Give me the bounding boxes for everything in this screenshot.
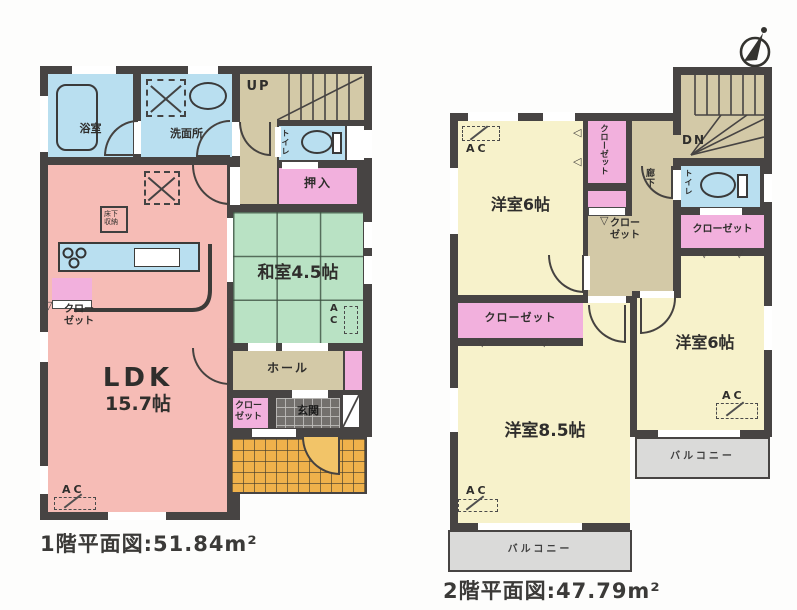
opening-hall [248, 343, 276, 351]
door-gap-hall-genkan [292, 390, 328, 398]
window [543, 112, 575, 121]
entrance-porch [230, 437, 367, 494]
toilet-tank-icon [737, 174, 748, 198]
window [108, 512, 166, 520]
label-closet-entry: クローゼット [235, 401, 267, 423]
ac-unit-box [462, 126, 500, 141]
window [764, 306, 772, 350]
window [764, 174, 772, 202]
door-gap-room-east6 [640, 291, 674, 298]
bathtub-icon [56, 84, 98, 151]
hall-side-closet [345, 351, 362, 390]
door-gap-room-south85 [588, 296, 626, 303]
window [40, 332, 48, 362]
door-gap-room-west6 [583, 256, 590, 290]
folding-door-icon: ▽ [540, 337, 548, 348]
toilet-window-recess [347, 126, 364, 160]
label-washitsu: 和室4.5帖 [233, 264, 363, 283]
entrance-door-gap [252, 429, 296, 437]
shoe-cabinet [342, 394, 360, 428]
folding-door-icon: ▽ [600, 215, 608, 226]
label-ac-west6: AC [466, 143, 489, 155]
underfloor-storage-label: 床下収納 [104, 210, 120, 227]
refrigerator-space-icon [144, 171, 180, 205]
label-room-east6: 洋室6帖 [650, 334, 760, 352]
label-hallway: 廊下 [644, 168, 653, 188]
folding-door-icon: ◁ [573, 156, 581, 167]
window [468, 112, 518, 121]
label-stairs-up: UP [240, 80, 277, 94]
window [450, 168, 458, 234]
label-closet-kitchen: クローゼット [64, 304, 98, 328]
folding-door-icon: ▽ [735, 248, 743, 259]
closet-kitchen-box [52, 278, 92, 300]
folding-door-icon: ▽ [478, 337, 486, 348]
label-toilet-f1: トイレ [281, 129, 289, 156]
underfloor-storage-box: 床下収納 [100, 206, 128, 233]
closet-hall-box [588, 191, 626, 207]
window [364, 222, 372, 248]
folding-door-icon: ◁ [573, 127, 581, 138]
window [658, 430, 740, 437]
floorplan-canvas: 床下収納 ▽ 浴室 洗面所 UP トイレ 押入 和室4.5帖 LDK 15.7帖… [0, 0, 797, 610]
label-washroom: 洗面所 [141, 128, 232, 140]
folding-door-icon: ▽ [700, 248, 708, 259]
window [478, 523, 582, 530]
floor2-caption: 2階平面図:47.79m² [443, 575, 661, 605]
ac-unit-box [344, 306, 358, 334]
label-oshiire: 押入 [279, 177, 357, 190]
opening-oshiire [282, 162, 318, 169]
window [188, 66, 218, 74]
label-room-south85: 洋室8.5帖 [470, 422, 620, 441]
window [40, 96, 48, 152]
label-toilet-f2: トイレ [684, 169, 692, 196]
toilet-bowl-icon [301, 130, 333, 154]
toilet-tank-icon [332, 132, 342, 154]
label-stairs-down: DN [676, 134, 712, 147]
label-bath: 浴室 [48, 123, 133, 135]
opening-washitsu-hall [282, 343, 328, 351]
label-closet-west6: クローゼット [599, 124, 608, 175]
sink-icon [189, 82, 227, 110]
washer-icon [146, 79, 186, 117]
window [40, 466, 48, 494]
folding-door-icon: ▽ [44, 300, 52, 311]
opening-closet-east6 [700, 208, 742, 215]
toilet-bowl-icon [700, 172, 736, 198]
label-ac-east6: AC [722, 390, 745, 402]
label-ac-washitsu: AC [330, 303, 343, 327]
label-ldk-size: 15.7帖 [88, 394, 188, 415]
window [450, 388, 458, 432]
label-closet-hall: クローゼット [610, 218, 642, 242]
door-gap-toilet-f2 [673, 170, 681, 200]
label-genkan: 玄関 [276, 405, 340, 417]
label-closet-south85: クローゼット [458, 312, 583, 324]
label-hall: ホール [233, 362, 343, 375]
north-arrow-icon [731, 20, 781, 74]
label-balcony-south: バルコニー [448, 544, 632, 555]
window [72, 66, 116, 74]
label-closet-east6: クローゼット [681, 224, 764, 235]
floor1-caption: 1階平面図:51.84m² [40, 528, 258, 558]
label-ldk: LDK [88, 364, 188, 393]
label-ac-south85: AC [466, 485, 489, 497]
label-room-west6: 洋室6帖 [458, 196, 583, 214]
window [364, 256, 372, 284]
label-balcony-east: バルコニー [635, 451, 770, 462]
stairs-up-treads-icon [277, 74, 364, 120]
window [364, 130, 372, 158]
room-ldk [48, 165, 227, 512]
hallway-f2-a [632, 121, 673, 291]
